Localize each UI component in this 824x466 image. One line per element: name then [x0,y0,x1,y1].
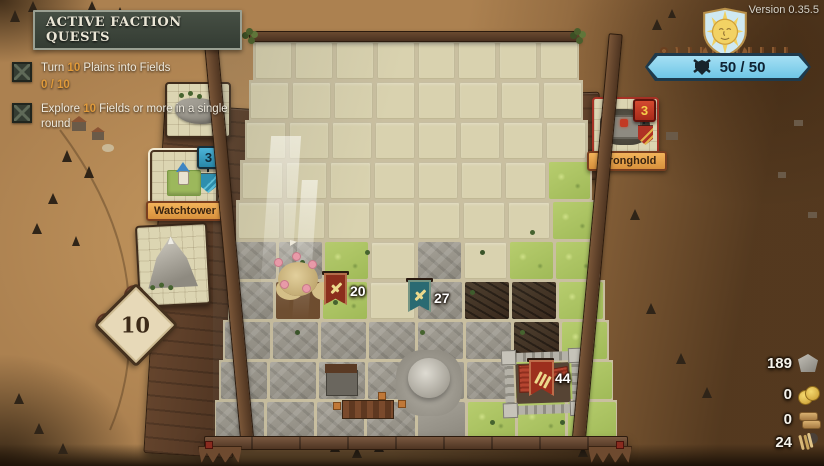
dome-top [408,358,450,398]
board-tile-empty[interactable] [460,122,500,159]
quest-progress: 0 / 10 [41,79,170,91]
board-tile-grass[interactable] [510,242,553,279]
board-tile-scorched[interactable] [465,282,509,319]
board-tile-empty[interactable] [250,82,289,119]
board-tile-empty[interactable] [543,82,582,119]
teal-pennant [408,280,431,312]
board-tile-rock[interactable] [321,322,366,359]
hop-leaves-decoration [574,28,581,35]
stone-icon [798,354,818,372]
quest-text-prefix: Turn [41,62,67,74]
quest-panel-title: ACTIVE FACTION QUESTS [33,10,242,50]
unit-strength: 44 [555,370,571,386]
wheat-icon [798,433,818,451]
board-tile-grass[interactable] [553,202,595,239]
quest-text-highlight: 10 [67,62,80,74]
board-tile-empty[interactable] [546,122,586,159]
unit-strength: 27 [434,290,450,306]
flower-patch [266,246,332,320]
board-row [249,80,584,120]
board-tile-empty[interactable] [376,82,415,119]
village-building [326,370,358,396]
resource-stone: 189 [688,352,818,374]
enemy-count-badge: 3 [633,99,656,122]
board-tile-empty[interactable] [375,122,415,159]
wood-icon [798,410,818,428]
sun-shield-emblem [700,7,750,59]
board-tile-empty[interactable] [508,202,550,239]
board-tile-empty[interactable] [295,42,333,79]
game-board[interactable]: 20 27 44 [213,40,619,440]
enemy-count-value: 3 [641,103,648,118]
tiles-remaining-counter: 10 [99,288,167,356]
board-row [245,120,588,160]
board-tile-empty[interactable] [505,162,546,199]
board-tile-empty[interactable] [292,82,331,119]
selected-card-label: Watchtower [146,201,224,221]
unit-strength: 20 [350,283,366,299]
unit-banner-red-army[interactable]: 20 [324,273,366,307]
board-tile-empty[interactable] [371,242,414,279]
frame-gem [205,441,213,449]
resource-wood: 0 [688,408,818,430]
board-tile-rock[interactable] [267,402,314,439]
board-tile-empty[interactable] [463,202,505,239]
board-row [236,200,596,240]
board-tile-empty[interactable] [246,122,286,159]
quest-checkbox-icon [12,62,32,82]
flower [302,284,311,293]
board-tile-empty[interactable] [501,82,540,119]
board-tile-empty[interactable] [289,122,329,159]
board-tile-rock[interactable] [273,322,318,359]
flower [292,252,301,261]
hp-banner: 50 / 50 [645,53,811,81]
stronghold-art-flag [620,119,628,127]
board-tile-empty[interactable] [418,82,457,119]
board-frame-top [249,31,581,42]
resource-gold: 0 [688,383,818,405]
board-frame-bottom [204,436,628,450]
flower [308,260,317,269]
crate [333,402,341,410]
resource-wheat: 24 [688,431,818,453]
board-tile-empty[interactable] [328,202,370,239]
castle-tower [503,403,519,419]
tiles-remaining-value: 10 [121,312,150,337]
quest-text-highlight: 10 [83,103,96,115]
hp-value: 50 / 50 [720,59,766,76]
shield-swords-icon [691,57,713,77]
board-tile-empty[interactable] [373,202,415,239]
village-longhouse [342,400,394,419]
flower [280,280,289,289]
quest-text-suffix: Plains into Fields [80,62,170,74]
board-tile-empty[interactable] [334,82,373,119]
tiles-remaining-diamond: 10 [94,283,179,368]
board-tile-empty[interactable] [377,42,415,79]
red-pennant [324,273,347,305]
board-tile-empty[interactable] [418,162,459,199]
crate [378,392,386,400]
board-row [253,40,579,80]
board-tile-rock[interactable] [418,242,461,279]
castle-tower [501,350,517,366]
unit-banner-castle-garrison[interactable]: 44 [529,360,571,394]
quest-item: Explore 10 Fields or more in a single ro… [12,102,242,133]
flower [274,258,283,267]
resource-stone-value: 189 [767,355,792,372]
sword-icon [328,281,344,297]
resource-gold-value: 0 [784,386,792,403]
quest-panel: ACTIVE FACTION QUESTS Turn 10 Plains int… [12,10,242,133]
board-tile-empty[interactable] [418,122,458,159]
board-tile-empty[interactable] [332,122,372,159]
board-tile-empty[interactable] [458,42,496,79]
board-tile-empty[interactable] [540,42,578,79]
board-tile-empty[interactable] [242,162,283,199]
watchtower-body-art [178,171,189,185]
quest-item: Turn 10 Plains into Fields 0 / 10 [12,61,242,91]
hop-leaves-decoration [246,28,253,35]
frame-gem [616,441,624,449]
board-tile-empty[interactable] [464,242,507,279]
claw-marks-icon [534,370,550,386]
resource-wood-value: 0 [784,411,792,428]
resource-wheat-value: 24 [775,434,792,451]
version-label: Version 0.35.5 [749,4,819,16]
board-tile-empty[interactable] [286,162,327,199]
quest-checkbox-icon [12,103,32,123]
board-tile-empty[interactable] [255,42,293,79]
gold-icon [798,385,818,403]
board-tile-empty[interactable] [330,162,371,199]
board-tile-grass[interactable] [549,162,590,199]
board-tile-scorched[interactable] [512,282,556,319]
board-tile-empty[interactable] [283,202,325,239]
card-count-value: 3 [205,150,212,165]
board-row [240,160,592,200]
board-tile-empty[interactable] [459,82,498,119]
board-tile-empty[interactable] [503,122,543,159]
crate [398,400,406,408]
board-tile-empty[interactable] [499,42,537,79]
board-tile-empty[interactable] [374,162,415,199]
red-pennant [529,360,554,396]
quest-text: Explore 10 Fields or more in a single ro… [41,102,239,133]
board-tile-rock[interactable] [270,362,316,399]
unit-banner-teal-army[interactable]: 27 [408,280,450,314]
quest-text: Turn 10 Plains into Fields [41,61,170,77]
board-tile-empty[interactable] [336,42,374,79]
board-tile-empty[interactable] [418,202,460,239]
sword-icon [412,288,428,304]
board-tile-empty[interactable] [238,202,280,239]
quest-text-prefix: Explore [41,103,83,115]
board-tile-empty[interactable] [461,162,502,199]
board-tile-empty[interactable] [418,42,456,79]
